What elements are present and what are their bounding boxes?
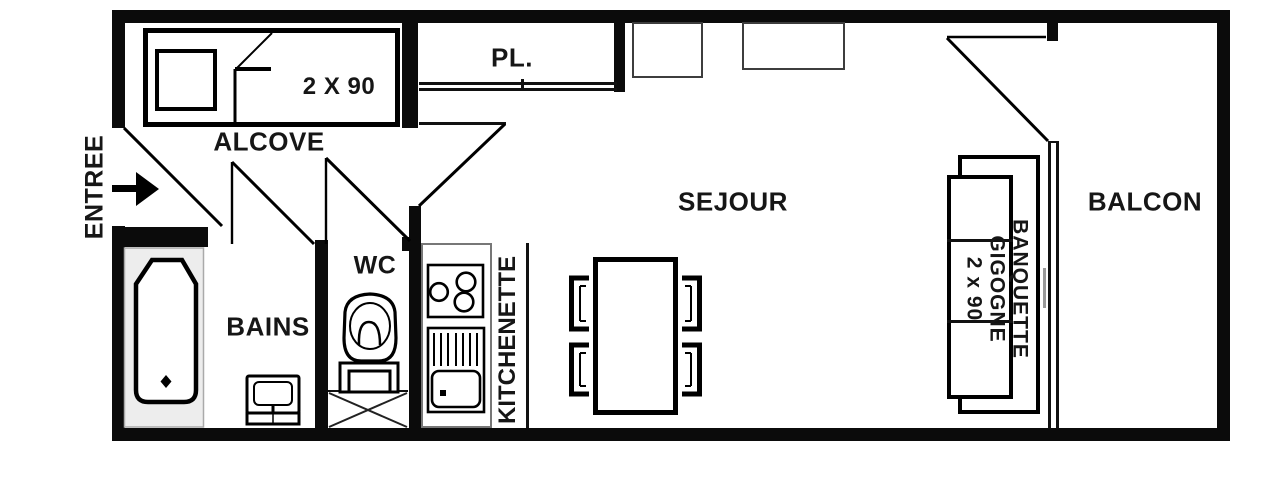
toilet [340, 294, 398, 392]
banquette-label-line1: BANQUETTE [1009, 219, 1032, 359]
balcony-window-handle [1043, 268, 1046, 308]
wall-balcony-pillar [1047, 22, 1058, 41]
banquette-label-line2: GIGOGNE [985, 219, 1008, 359]
banquette-label: BANQUETTE GIGOGNE 2 x 90 [962, 219, 1031, 359]
balcony-window-line-1 [1048, 142, 1051, 429]
bathroom-door-swing [232, 162, 314, 244]
alcove-label: ALCOVE [213, 128, 324, 157]
balcony-label: BALCON [1088, 188, 1202, 217]
closet-slider-tick [521, 79, 524, 91]
wc-door-swing [326, 158, 410, 244]
wall-alcove-closet [402, 22, 418, 128]
wall-left-upper [112, 10, 125, 128]
wall-bathroom-top [112, 227, 208, 247]
kitchenette-counter [421, 243, 492, 428]
wall-wc-door-jamb [402, 237, 410, 251]
living-room-label: SEJOUR [678, 188, 788, 217]
chair-left-bottom [572, 345, 590, 394]
wall-cupboard-right [742, 22, 845, 70]
kitchenette-label: KITCHENETTE [495, 256, 521, 424]
closet-label: PL. [491, 44, 533, 73]
wall-left-lower [112, 226, 125, 441]
alcove-bed-pillow [155, 49, 217, 111]
balcony-door-swing [947, 37, 1048, 141]
dining-table [593, 257, 678, 415]
banquette-label-line3: 2 x 90 [962, 219, 985, 359]
floor-plan: ENTREE ALCOVE 2 X 90 PL. SEJOUR BALCON W… [0, 0, 1280, 502]
wc-label: WC [354, 252, 397, 280]
sejour-door-frame [419, 122, 506, 125]
wc-floor-cross [329, 393, 407, 427]
wc-floor-line [328, 390, 408, 392]
entry-arrow-icon [112, 172, 159, 206]
bathtub-drain [161, 375, 172, 388]
balcony-window-line-2 [1056, 142, 1059, 429]
wall-cupboard-left [632, 22, 703, 78]
wall-wc-kitchenette [409, 206, 421, 428]
bathroom-label: BAINS [226, 313, 309, 342]
chair-left-top [572, 278, 590, 329]
bathtub [125, 248, 204, 427]
entrance-label: ENTREE [81, 135, 109, 239]
wall-bathroom-wc [315, 240, 328, 428]
wall-right [1217, 10, 1230, 441]
closet-slider-line-2 [419, 88, 617, 91]
alcove-bed-dimension: 2 X 90 [303, 74, 375, 100]
closet-slider-line-1 [419, 82, 617, 85]
entry-door-swing [124, 128, 222, 226]
wall-bottom [112, 428, 1230, 441]
washbasin [247, 376, 299, 424]
chair-right-bottom [682, 345, 700, 394]
chair-right-top [682, 278, 700, 329]
kitchenette-divider [526, 243, 529, 428]
sejour-door-swing [419, 124, 505, 206]
